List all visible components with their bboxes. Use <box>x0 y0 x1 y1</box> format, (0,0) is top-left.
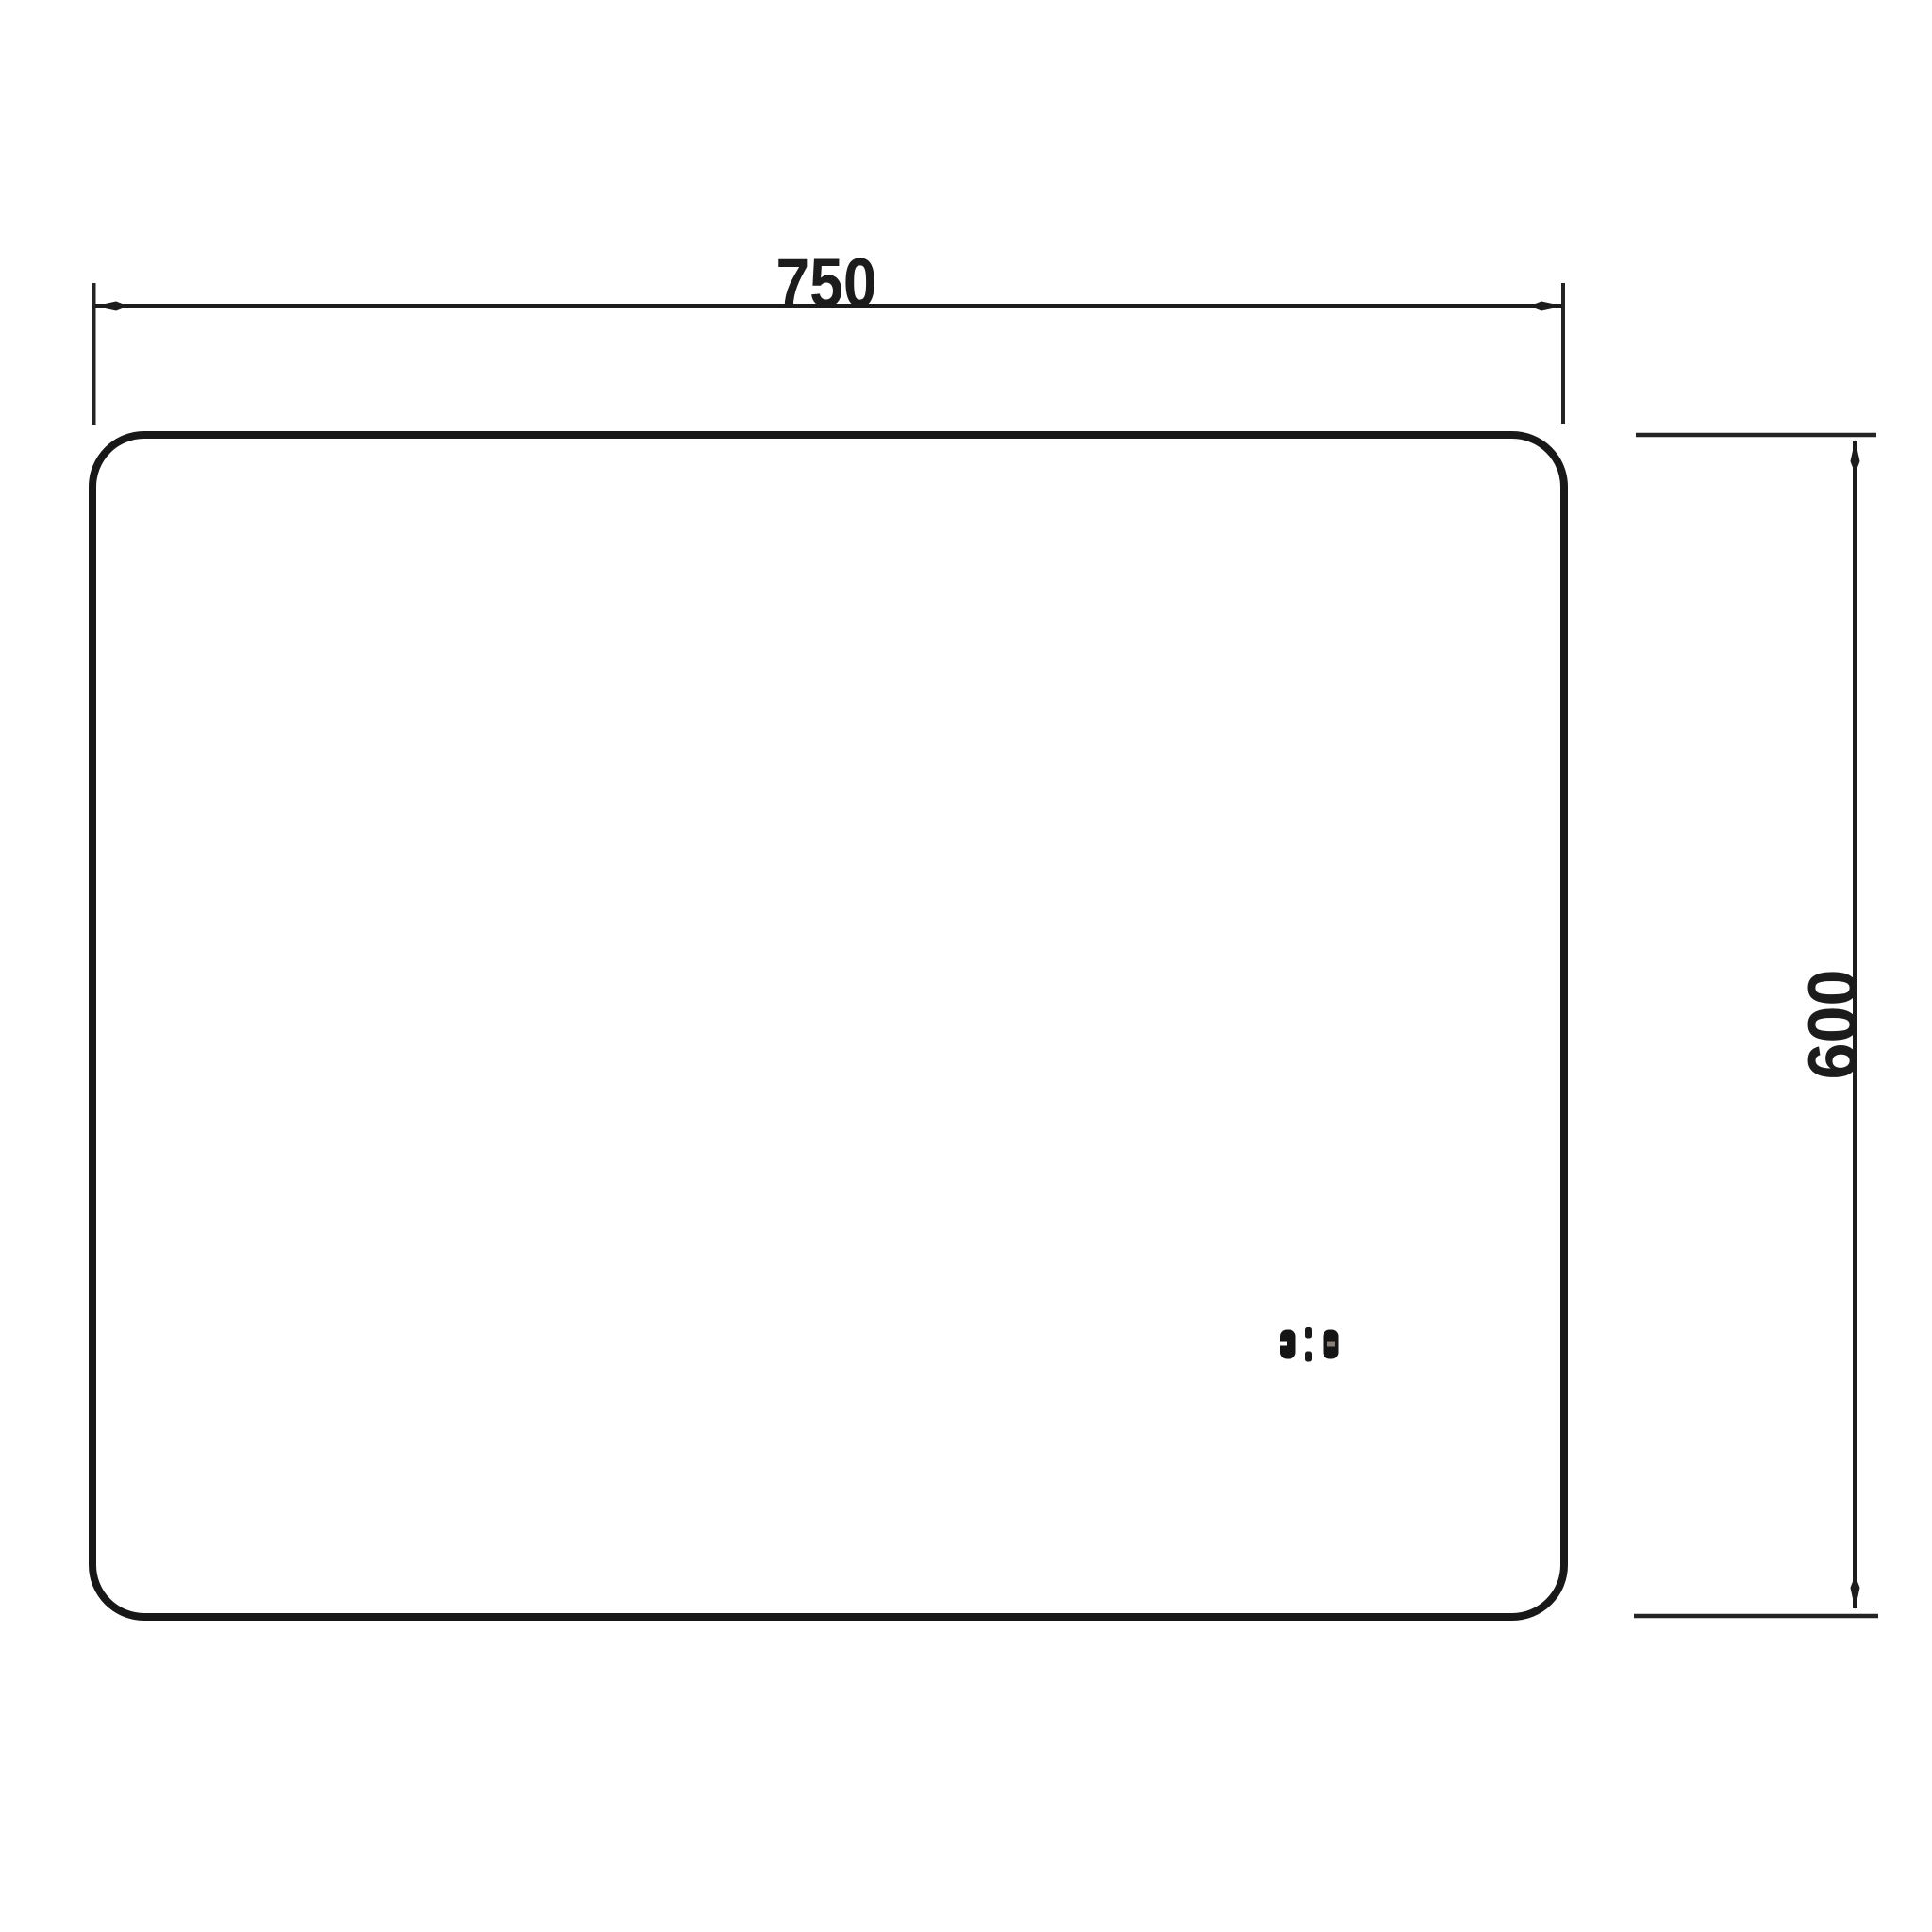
svg-text:600: 600 <box>1795 970 1872 1080</box>
svg-text:750: 750 <box>776 245 877 322</box>
